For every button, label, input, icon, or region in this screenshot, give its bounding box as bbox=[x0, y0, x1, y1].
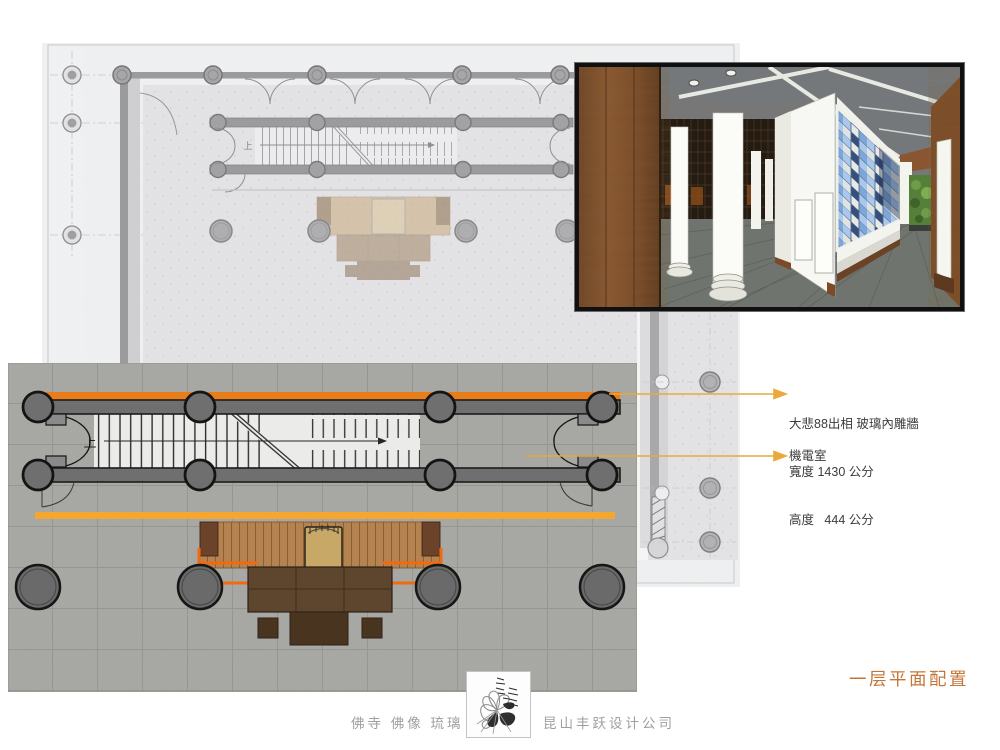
glass-wall-beam bbox=[35, 392, 620, 400]
stair-block-lower: 上 bbox=[83, 411, 420, 471]
wood-panel-left bbox=[579, 67, 661, 307]
render-center-wall bbox=[775, 93, 835, 297]
room-annotation: 機電室 bbox=[789, 448, 827, 464]
presentation-slide: { "caption": { "text": "一层平面配置", "color"… bbox=[0, 0, 1000, 750]
company-logo bbox=[466, 671, 531, 738]
footer-tagline: 佛寺 佛像 琉璃 bbox=[351, 712, 464, 732]
lotus-logo-icon bbox=[467, 672, 528, 735]
footer-company: 昆山丰跃设计公司 bbox=[543, 712, 675, 732]
lower-floor-plan: 上 bbox=[8, 363, 637, 692]
wall-annotation-line1: 大悲88出相 玻璃內雕牆 bbox=[789, 416, 919, 432]
page-caption: 一层平面配置 bbox=[849, 666, 969, 691]
left-wall bbox=[120, 75, 128, 365]
wall-annotation-line2: 寬度 1430 公分 bbox=[789, 464, 919, 480]
interior-render-inset bbox=[575, 63, 964, 311]
buddha-seat bbox=[305, 527, 342, 568]
right-wood-wall bbox=[931, 77, 960, 307]
up-label-upper: 上 bbox=[243, 141, 252, 151]
wall-annotation-line3: 高度 444 公分 bbox=[789, 512, 919, 528]
stair-wall-north bbox=[38, 400, 620, 414]
wall-annotation: 大悲88出相 玻璃內雕牆 寬度 1430 公分 高度 444 公分 bbox=[789, 384, 919, 544]
amber-beam bbox=[35, 512, 615, 519]
leader-arrow bbox=[774, 390, 786, 399]
stair-wall-south bbox=[38, 468, 620, 482]
leader-arrow bbox=[774, 452, 786, 461]
